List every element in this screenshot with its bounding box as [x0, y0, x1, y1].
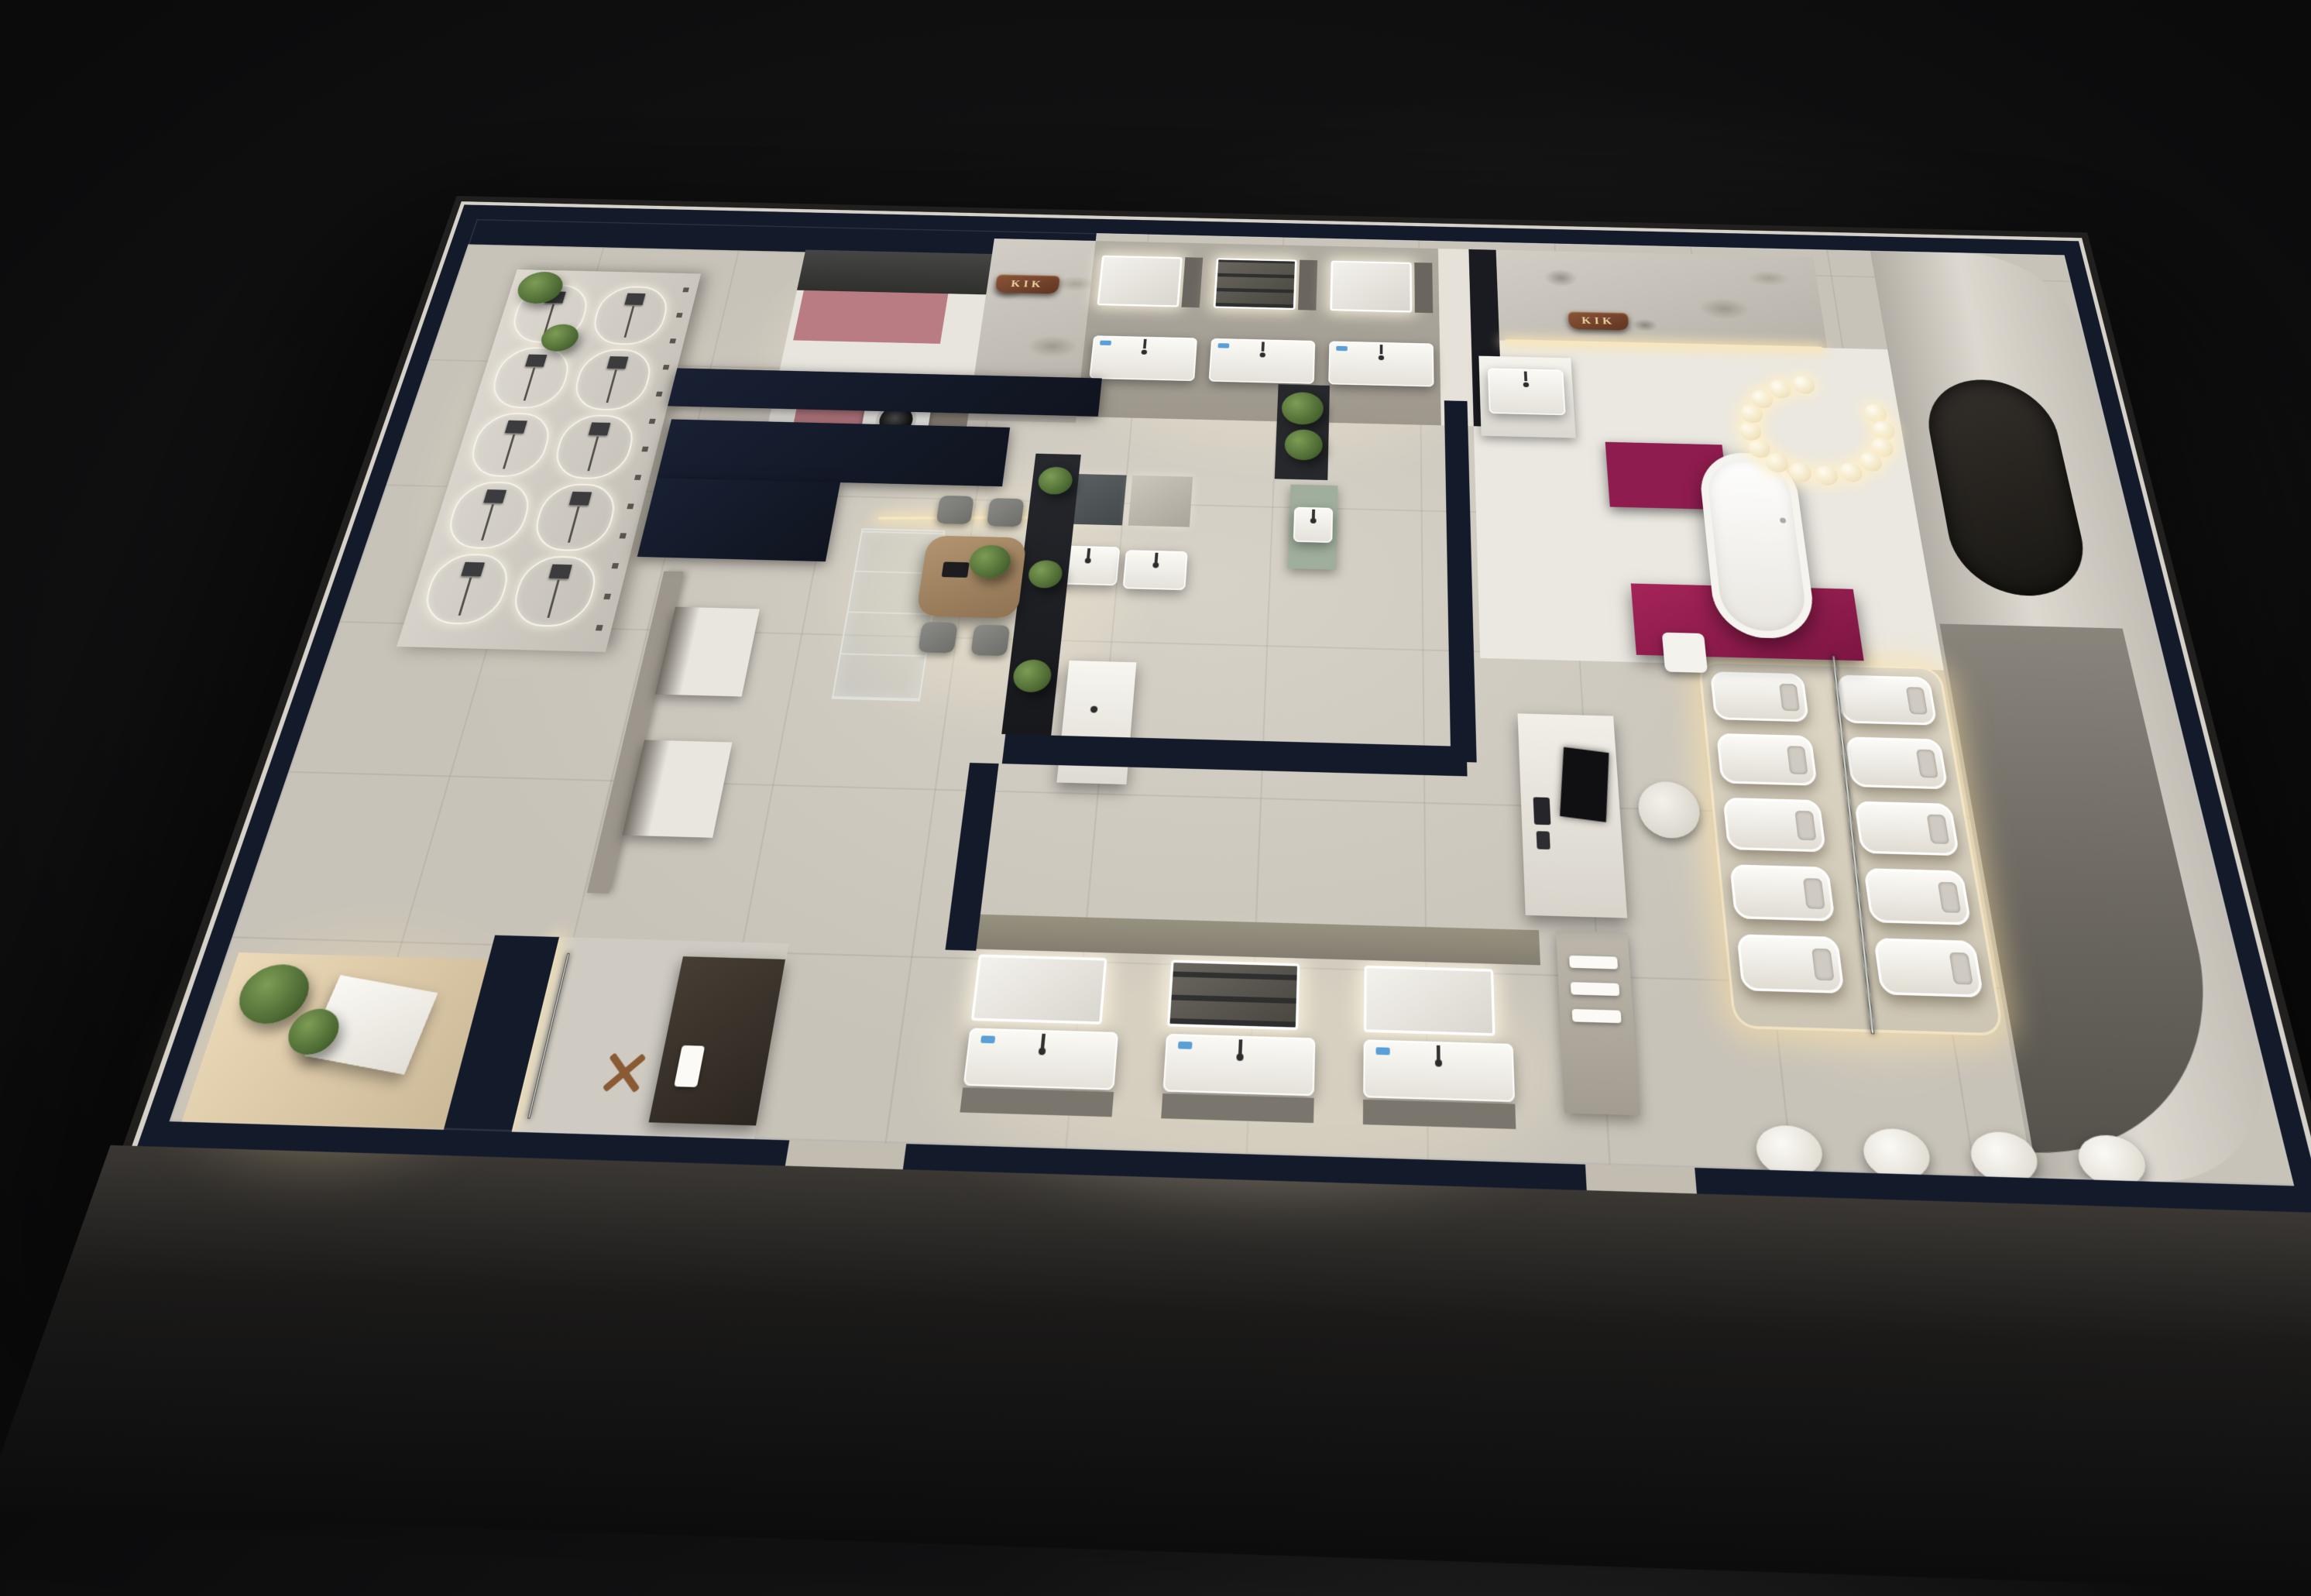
podium-front-face: [0, 1145, 2311, 1596]
pendant-bulb: [1863, 403, 1888, 423]
wood-table: [915, 535, 1027, 618]
price-tag: [1178, 1042, 1193, 1049]
table-book: [942, 561, 970, 578]
display-toilet: [1863, 868, 1972, 925]
bottom-vanity-bay-mirror: [971, 954, 1107, 1024]
display-toilet: [1736, 934, 1845, 994]
bottom-vanity-bay-cabinet: [1363, 1100, 1516, 1129]
shower-display-panel: [569, 348, 657, 411]
bottom-vanity-bay-cabinet: [960, 1087, 1114, 1117]
laundry-dark-counter: [797, 249, 992, 294]
pendant-bulb: [1792, 376, 1816, 394]
top-vanity-bay-side-shelf: [1414, 263, 1433, 313]
brand-sign-right: KIK: [1568, 311, 1629, 330]
top-vanity-bay-mirror: [1214, 258, 1297, 310]
marble-feature-wall: [1496, 250, 1828, 348]
display-toilet: [1716, 733, 1818, 786]
display-toilet: [1854, 801, 1960, 856]
washbasin: [1122, 550, 1187, 590]
sphere-ring-pendant: [1729, 368, 1907, 491]
wall-hung-basin: [1860, 1127, 1933, 1181]
brand-sign-right-text: KIK: [1581, 314, 1616, 327]
doorway-gap: [785, 1140, 906, 1169]
white-pillar: [1438, 249, 1474, 426]
top-vanity-bay-mirror: [1330, 261, 1412, 313]
partition-wall: [1444, 400, 1477, 762]
dining-chair: [936, 496, 974, 524]
wall-hung-basin: [1754, 1124, 1825, 1177]
towel: [1571, 982, 1620, 996]
shower-display-panel: [549, 414, 639, 480]
remote-control: [1537, 831, 1550, 849]
price-tag: [1217, 343, 1229, 348]
front-wall-basin-row: [1754, 1124, 2203, 1201]
demo-chair: [1636, 781, 1702, 839]
mirror-cabinet: [1128, 475, 1193, 527]
wall-hung-basin: [1967, 1131, 2041, 1185]
bottom-vanity-bay-mirror: [1364, 966, 1495, 1036]
display-toilet: [1836, 674, 1938, 725]
ceiling-slab: [637, 478, 840, 561]
bottom-vanity-bay-cabinet: [1161, 1093, 1314, 1123]
pendant-bulb: [1871, 420, 1896, 440]
pendant-bulb: [1764, 452, 1789, 472]
top-vanity-bay-side-shelf: [1182, 257, 1204, 307]
shower-display-panel: [588, 286, 673, 345]
price-tag: [980, 1035, 995, 1043]
bathtub-drain: [1780, 518, 1787, 523]
pendant-bulb: [1768, 379, 1792, 398]
display-toilet: [1729, 864, 1835, 922]
brand-sign-left-text: KIK: [1010, 278, 1045, 290]
pendant-bulb: [1839, 462, 1864, 482]
price-tag: [1336, 346, 1348, 351]
wall-hung-basin: [2074, 1134, 2150, 1188]
showroom-floorplan: KIK KIK: [137, 204, 2311, 1213]
display-toilet: [1722, 798, 1826, 853]
showroom-render-page: { "scene": { "description": "Night aeria…: [0, 0, 2311, 1306]
pendant-bulb: [1747, 438, 1771, 458]
bottom-vanity-bay-mirror: [1167, 960, 1300, 1031]
display-toilet: [1873, 938, 1984, 997]
ceiling-slab: [657, 419, 1010, 486]
doorway-gap: [1585, 1165, 1697, 1194]
towel: [1569, 956, 1618, 970]
shower-display-panel: [529, 483, 621, 552]
price-tag: [1376, 1047, 1390, 1055]
vanity-unit-light: [1122, 475, 1193, 595]
brand-sign-left: KIK: [994, 274, 1060, 293]
pendant-bulb: [1787, 462, 1812, 482]
display-toilet: [1845, 736, 1949, 789]
pendant-bulb: [1739, 421, 1763, 441]
sage-vanity-unit: [1288, 485, 1338, 570]
dining-chair: [918, 622, 958, 653]
towel: [1572, 1009, 1622, 1023]
top-vanity-bay-mirror: [1097, 256, 1183, 307]
display-toilet: [1710, 671, 1809, 722]
cube-stool: [1662, 633, 1708, 673]
price-tag: [1100, 341, 1111, 345]
top-vanity-bay-side-shelf: [1298, 260, 1317, 311]
pendant-bulb: [1814, 465, 1839, 486]
dining-chair: [970, 625, 1010, 656]
dining-chair: [987, 498, 1025, 527]
remote-control: [1533, 797, 1551, 825]
laundry-pink-splash-panel: [793, 290, 948, 344]
desk-screen: [1560, 747, 1609, 822]
washbasin: [1293, 507, 1333, 543]
washbasin: [1488, 368, 1566, 415]
shower-display-panel: [507, 555, 603, 627]
